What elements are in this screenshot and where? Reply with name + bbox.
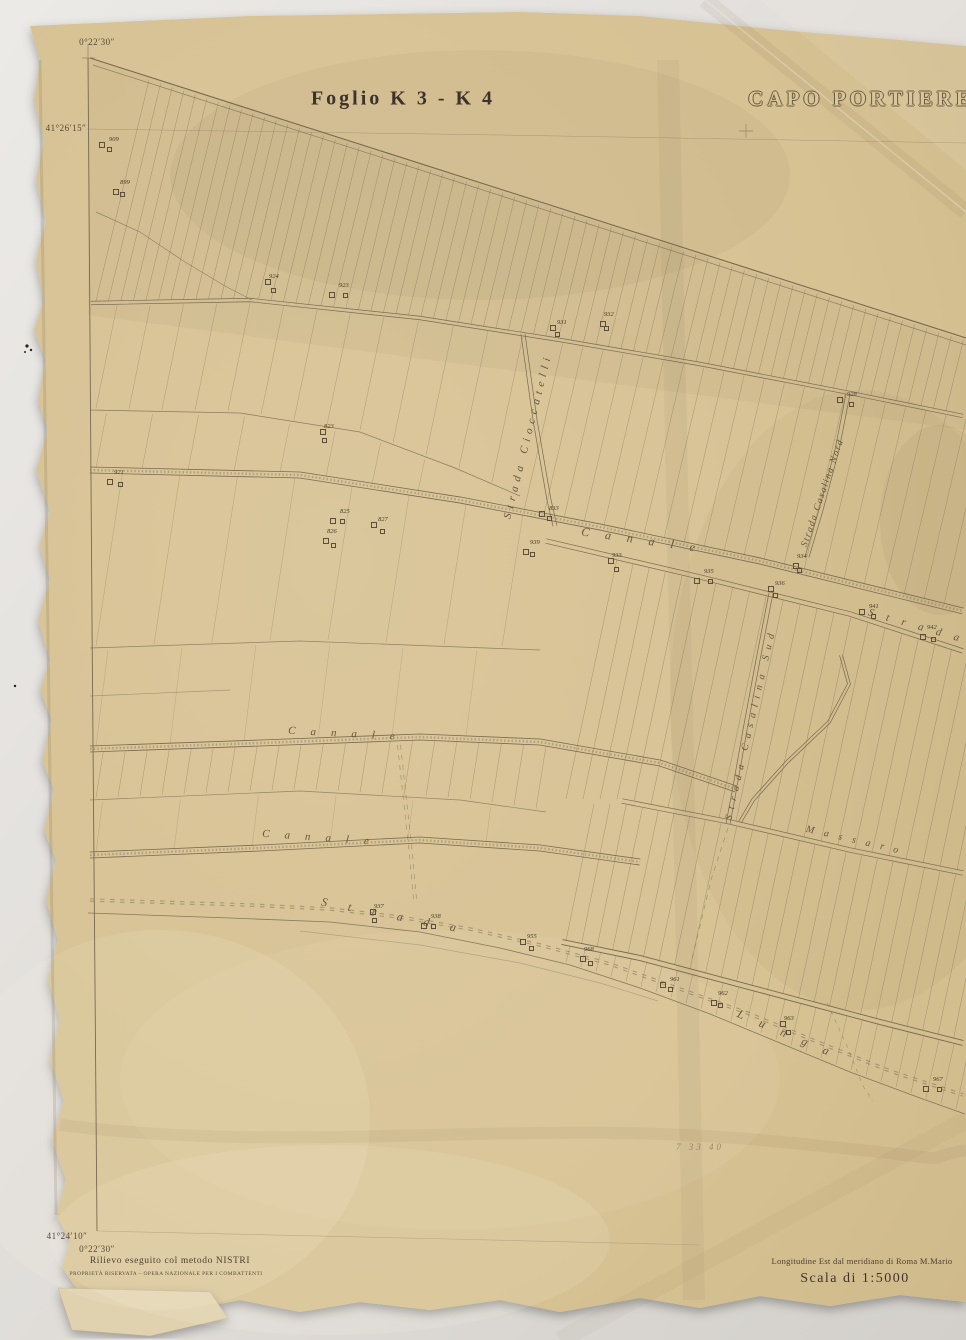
building-square-icon xyxy=(421,923,427,929)
parcel-number: 961 xyxy=(670,976,680,983)
corner-coordinate-top-latitude: 41°26′15″ xyxy=(46,123,87,133)
parcel-number: 909 xyxy=(109,136,119,143)
building-square-icon xyxy=(539,511,545,517)
parcel-number: 823 xyxy=(324,423,334,430)
parcel-number: 933 xyxy=(612,552,622,559)
parcel-number: 967 xyxy=(933,1076,943,1083)
building-square-icon xyxy=(529,946,534,951)
building-square-icon xyxy=(859,609,865,615)
map-linework xyxy=(0,0,966,1340)
building-square-icon xyxy=(550,325,556,331)
building-square-icon xyxy=(786,1030,791,1035)
building-square-icon xyxy=(588,961,593,966)
parcel-number: 941 xyxy=(869,603,879,610)
building-square-icon xyxy=(668,987,673,992)
building-square-icon xyxy=(113,189,119,195)
place-name-title: CAPO PORTIERE xyxy=(748,87,966,112)
building-square-icon xyxy=(711,1000,717,1006)
building-square-icon xyxy=(431,924,436,929)
building-square-icon xyxy=(871,614,876,619)
building-square-icon xyxy=(330,518,336,524)
building-square-icon xyxy=(371,522,377,528)
parcel-number: 955 xyxy=(527,933,537,940)
building-square-icon xyxy=(107,147,112,152)
parcel-number: 935 xyxy=(704,568,714,575)
parcel-number: 921 xyxy=(114,469,124,476)
building-square-icon xyxy=(580,956,586,962)
parcel-number: 827 xyxy=(378,516,388,523)
parcel-number: 825 xyxy=(340,508,350,515)
building-square-icon xyxy=(530,552,535,557)
building-square-icon xyxy=(372,918,377,923)
map-scale: Scala di 1:5000 xyxy=(800,1271,910,1287)
building-square-icon xyxy=(547,516,552,521)
building-square-icon xyxy=(768,586,774,592)
parcel-number: 923 xyxy=(339,282,349,289)
building-square-icon xyxy=(614,567,619,572)
building-square-icon xyxy=(937,1087,942,1092)
parcel-number: 833 xyxy=(549,505,559,512)
building-square-icon xyxy=(797,568,802,573)
parcel-number: 899 xyxy=(120,179,130,186)
parcel-number: 938 xyxy=(431,913,441,920)
building-square-icon xyxy=(660,982,666,988)
corner-coordinate-top-longitude: 0°22′30″ xyxy=(79,37,115,47)
longitude-reference-note: Longitudine Est dal meridiano di Roma M.… xyxy=(772,1256,953,1266)
building-square-icon xyxy=(329,292,335,298)
building-square-icon xyxy=(718,1003,723,1008)
building-square-icon xyxy=(708,579,713,584)
survey-method-credit: Rilievo eseguito col metodo NISTRI xyxy=(90,1256,250,1266)
parcel-number: 932 xyxy=(604,311,614,318)
parcel-number: 936 xyxy=(775,580,785,587)
building-square-icon xyxy=(331,543,336,548)
building-square-icon xyxy=(523,549,529,555)
building-square-icon xyxy=(520,939,526,945)
corner-coordinate-bottom-latitude: 41°24′10″ xyxy=(47,1231,88,1241)
parcel-number: 931 xyxy=(557,319,567,326)
building-square-icon xyxy=(380,529,385,534)
building-square-icon xyxy=(343,293,348,298)
building-square-icon xyxy=(920,634,926,640)
building-square-icon xyxy=(120,192,125,197)
parcel-number: 924 xyxy=(269,273,279,280)
building-square-icon xyxy=(323,538,329,544)
building-square-icon xyxy=(837,397,843,403)
building-square-icon xyxy=(931,637,936,642)
parcel-number: 826 xyxy=(327,528,337,535)
sheet-title: Foglio K 3 - K 4 xyxy=(311,88,495,111)
building-square-icon xyxy=(322,438,327,443)
corner-coordinate-bottom-longitude: 0°22′30″ xyxy=(79,1244,115,1254)
building-square-icon xyxy=(555,332,560,337)
parcel-number: 934 xyxy=(797,553,807,560)
pencil-annotation: 7 33 40 xyxy=(676,1142,724,1152)
parcel-number: 962 xyxy=(718,990,728,997)
building-square-icon xyxy=(923,1086,929,1092)
building-square-icon xyxy=(849,402,854,407)
building-square-icon xyxy=(694,578,700,584)
parcel-number: 937 xyxy=(374,903,384,910)
building-square-icon xyxy=(107,479,113,485)
scanned-map-sheet: Foglio K 3 - K 4 CAPO PORTIERE 0°22′30″ … xyxy=(0,0,966,1340)
building-square-icon xyxy=(118,482,123,487)
parcel-number: 928 xyxy=(847,391,857,398)
building-square-icon xyxy=(99,142,105,148)
building-square-icon xyxy=(271,288,276,293)
parcel-number: 963 xyxy=(784,1015,794,1022)
building-square-icon xyxy=(340,519,345,524)
building-square-icon xyxy=(604,326,609,331)
property-credit: PROPRIETÀ RISERVATA – OPERA NAZIONALE PE… xyxy=(70,1271,263,1277)
parcel-number: 942 xyxy=(927,624,937,631)
building-square-icon xyxy=(773,593,778,598)
parcel-number: 939 xyxy=(530,539,540,546)
parcel-number: 968 xyxy=(584,946,594,953)
